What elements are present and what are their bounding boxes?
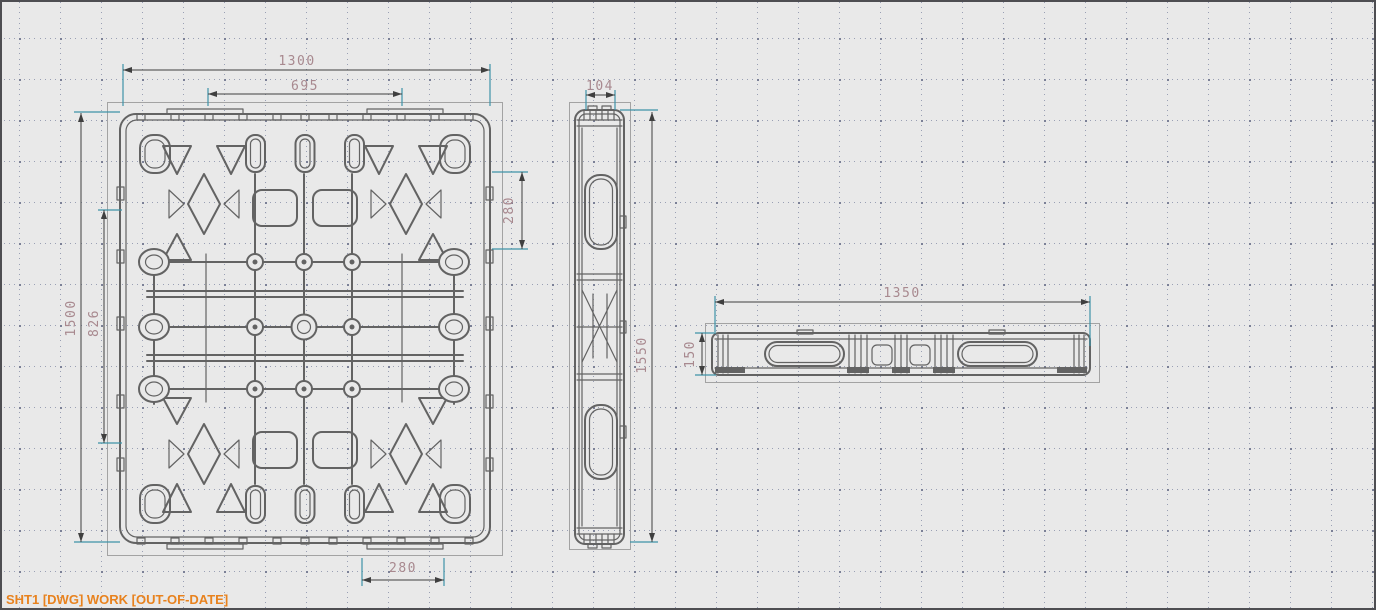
dim-side-thickness[interactable]: 104 [586, 79, 615, 110]
dim-front-overall-height[interactable]: 150 [683, 333, 716, 375]
dimension-overlay: 1300 695 280 1500 82 [2, 2, 1376, 610]
dim-left-inner-span[interactable]: 826 [87, 210, 122, 443]
dim-text[interactable]: 150 [683, 340, 698, 368]
dim-front-overall-width[interactable]: 1350 [715, 286, 1090, 346]
dim-text[interactable]: 826 [87, 309, 102, 337]
dim-text[interactable]: 104 [586, 79, 614, 94]
dim-top-tab-span[interactable]: 695 [208, 79, 402, 106]
cad-drawing-canvas[interactable]: 1300 695 280 1500 82 [0, 0, 1376, 610]
dim-text[interactable]: 280 [389, 561, 417, 576]
dim-text[interactable]: 1500 [64, 299, 79, 336]
dim-right-pocket-height[interactable]: 280 [492, 172, 528, 249]
status-bar-text: SHT1 [DWG] WORK [OUT-OF-DATE] [6, 592, 228, 607]
dim-text[interactable]: 1300 [278, 54, 315, 69]
dim-text[interactable]: 1350 [883, 286, 920, 301]
dim-side-overall-length[interactable]: 1550 [620, 110, 658, 542]
dim-text[interactable]: 695 [291, 79, 319, 94]
dim-text[interactable]: 280 [502, 196, 517, 224]
dim-bottom-tab-width[interactable]: 280 [362, 558, 444, 586]
dim-text[interactable]: 1550 [635, 336, 650, 373]
